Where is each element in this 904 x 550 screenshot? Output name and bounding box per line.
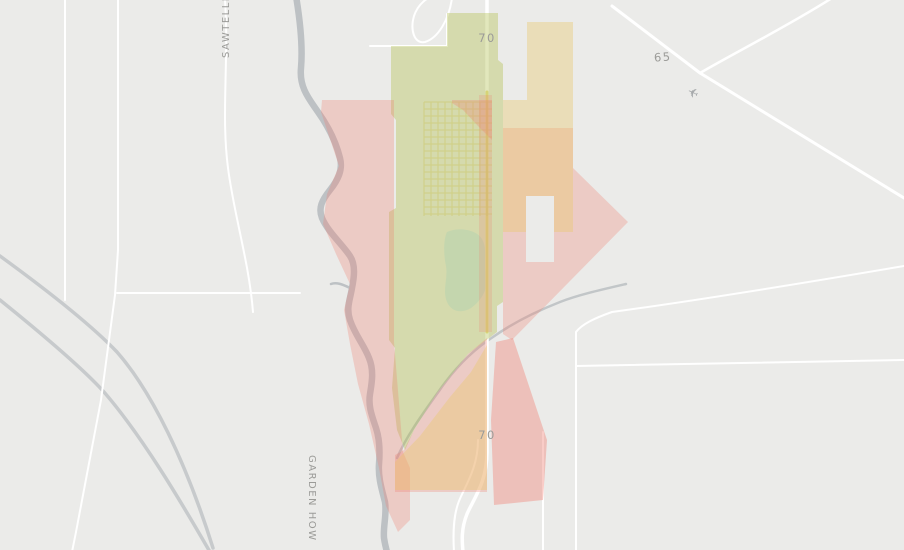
road-east-1 [576,266,904,366]
road-vertical-west-2 [72,0,118,550]
river-spur [331,283,350,288]
road-east-2 [576,360,904,366]
road-label-sawtelle: SAWTELLE [221,0,232,58]
highway-65-north-branch [700,0,832,73]
road-label-garden: GARDEN HOW [306,455,317,542]
road-label-70-top: 70 [478,31,496,45]
coverage-pink-highway-stripe [479,95,492,332]
airport-icon: ✈ [684,85,700,103]
road-label-65: 65 [653,49,672,64]
map-svg[interactable]: 707065SAWTELLEGARDEN HOW✈ [0,0,904,550]
coverage-pink-south-wedge [491,338,547,505]
gray-road-southwest-2 [0,300,210,550]
map-canvas[interactable]: 707065SAWTELLEGARDEN HOW✈ [0,0,904,550]
road-label-70-bottom: 70 [478,428,496,442]
highway-65-southeast [700,73,904,198]
coverage-gap-notch [526,196,554,262]
